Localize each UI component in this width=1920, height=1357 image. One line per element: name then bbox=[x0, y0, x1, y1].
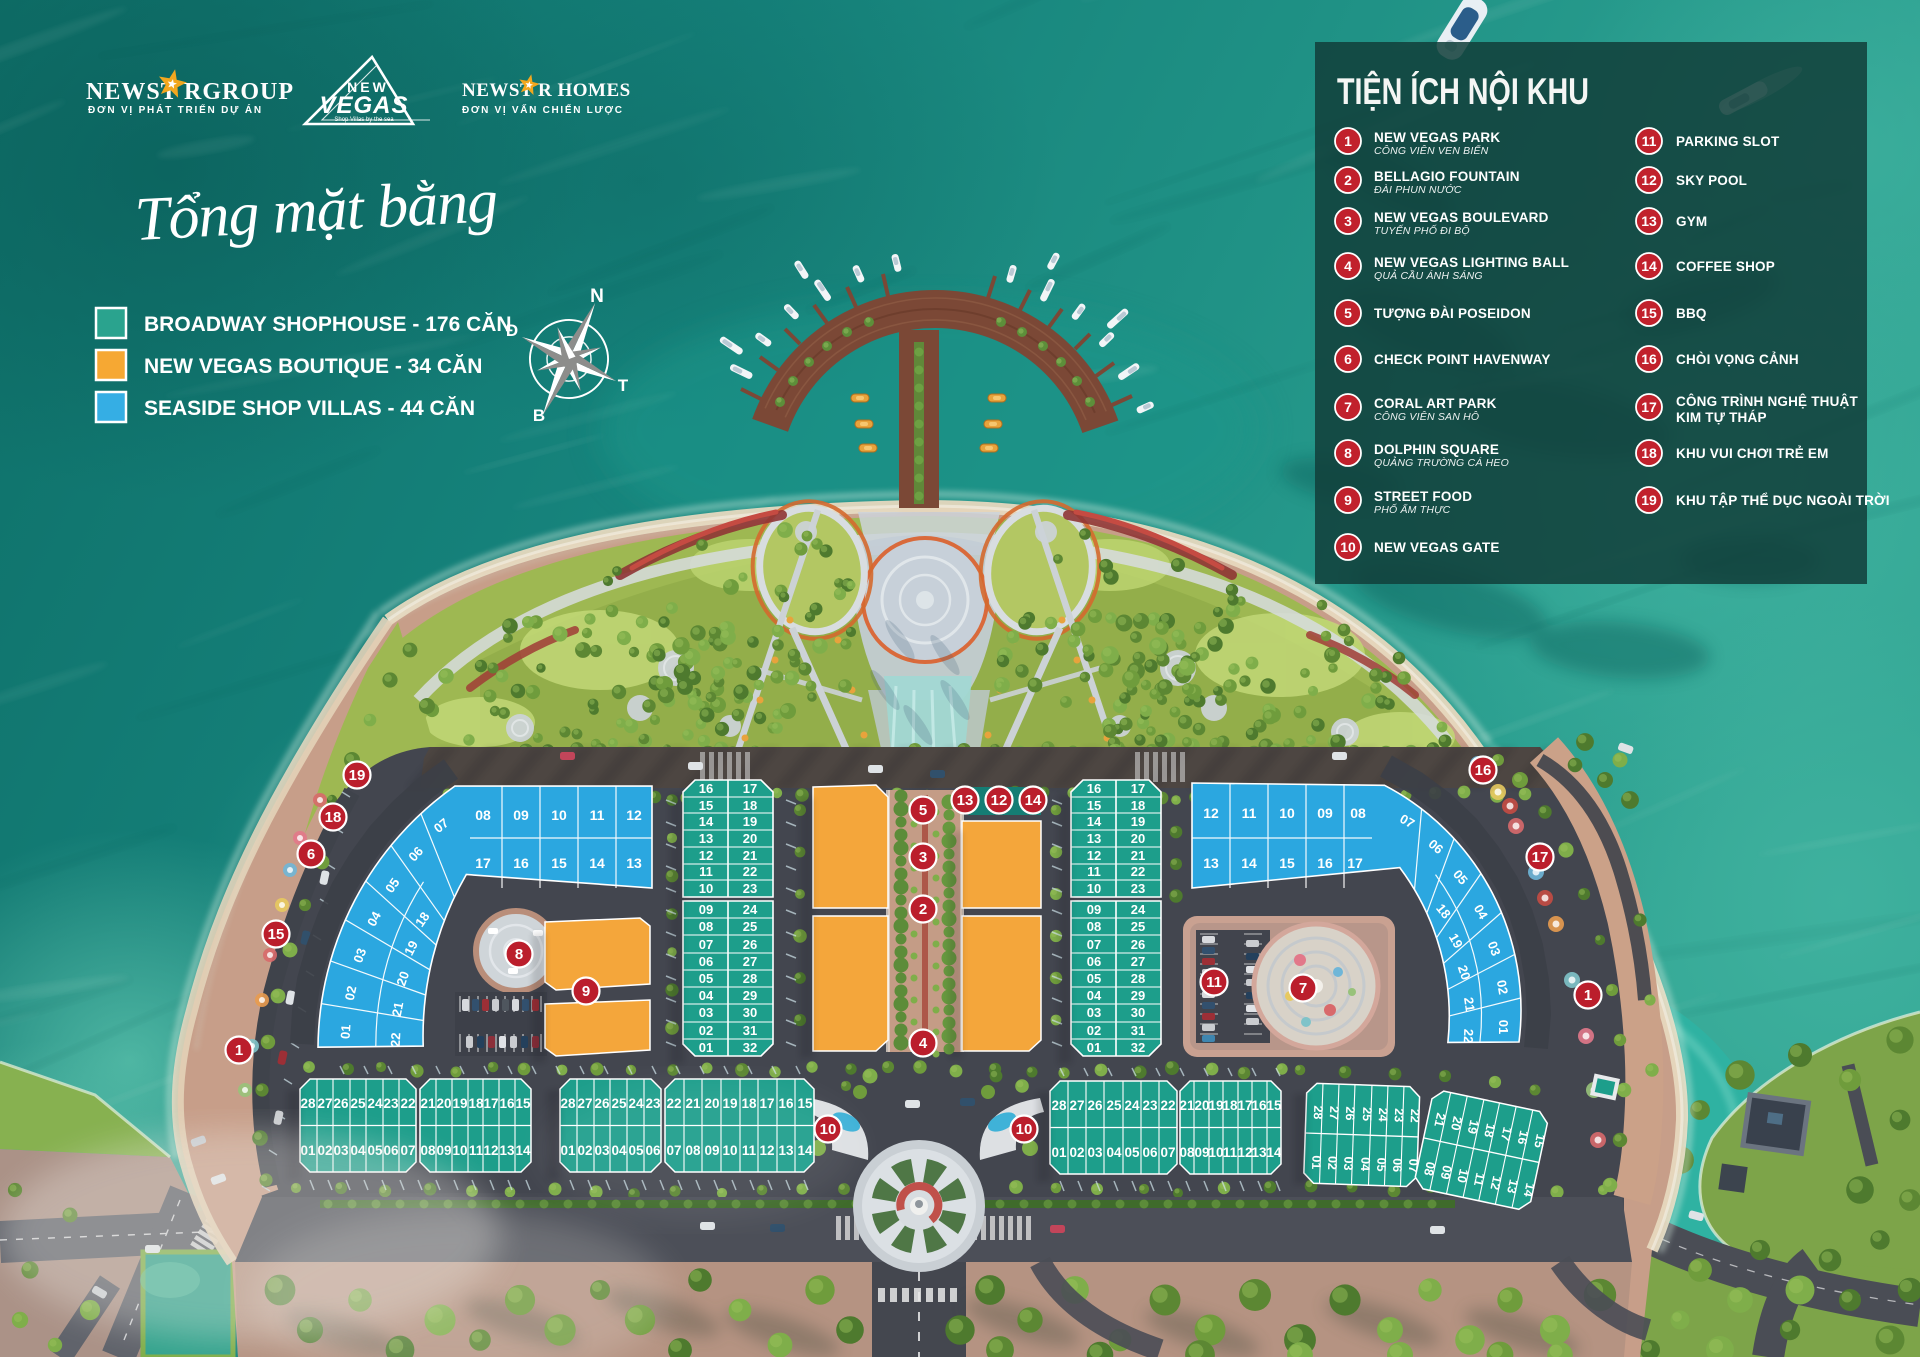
svg-text:COFFEE SHOP: COFFEE SHOP bbox=[1676, 259, 1775, 274]
svg-text:21: 21 bbox=[1461, 996, 1478, 1012]
svg-text:SKY POOL: SKY POOL bbox=[1676, 173, 1747, 188]
svg-text:01: 01 bbox=[1051, 1145, 1067, 1160]
svg-text:8: 8 bbox=[1344, 445, 1352, 461]
svg-text:09: 09 bbox=[1317, 805, 1333, 821]
svg-text:19: 19 bbox=[349, 767, 366, 784]
svg-text:27: 27 bbox=[317, 1096, 332, 1111]
svg-text:11: 11 bbox=[1642, 133, 1657, 149]
svg-text:TUYẾN PHỐ ĐI BỘ: TUYẾN PHỐ ĐI BỘ bbox=[1374, 224, 1470, 237]
svg-text:NEW VEGAS BOUTIQUE - 34 CĂN: NEW VEGAS BOUTIQUE - 34 CĂN bbox=[144, 355, 482, 378]
svg-text:12: 12 bbox=[626, 807, 642, 823]
svg-text:16: 16 bbox=[1317, 855, 1333, 871]
svg-text:09: 09 bbox=[1194, 1145, 1209, 1160]
svg-text:20: 20 bbox=[1194, 1098, 1209, 1113]
svg-text:11: 11 bbox=[1087, 864, 1101, 879]
svg-text:19: 19 bbox=[1131, 814, 1145, 829]
svg-text:17: 17 bbox=[483, 1096, 498, 1111]
svg-text:08: 08 bbox=[1350, 805, 1366, 821]
svg-text:23: 23 bbox=[1392, 1108, 1406, 1122]
svg-text:17: 17 bbox=[1237, 1098, 1252, 1113]
svg-text:11: 11 bbox=[699, 864, 713, 879]
svg-text:24: 24 bbox=[743, 902, 758, 917]
svg-text:2: 2 bbox=[1344, 172, 1352, 188]
svg-text:08: 08 bbox=[475, 807, 491, 823]
svg-text:25: 25 bbox=[743, 919, 757, 934]
svg-text:1: 1 bbox=[235, 1042, 243, 1059]
svg-text:10: 10 bbox=[1340, 539, 1356, 555]
svg-text:24: 24 bbox=[1124, 1098, 1140, 1113]
svg-text:32: 32 bbox=[743, 1040, 757, 1055]
svg-text:21: 21 bbox=[743, 848, 757, 863]
svg-text:Đ: Đ bbox=[506, 321, 518, 340]
svg-text:27: 27 bbox=[743, 954, 757, 969]
svg-text:17: 17 bbox=[1347, 855, 1363, 871]
svg-text:26: 26 bbox=[333, 1096, 349, 1111]
svg-text:28: 28 bbox=[1051, 1098, 1067, 1113]
svg-text:12: 12 bbox=[1237, 1145, 1252, 1160]
svg-text:28: 28 bbox=[1131, 971, 1145, 986]
svg-text:10: 10 bbox=[699, 881, 713, 896]
svg-text:20: 20 bbox=[1448, 1115, 1465, 1132]
svg-text:13: 13 bbox=[499, 1143, 515, 1158]
svg-text:17: 17 bbox=[1131, 781, 1145, 796]
svg-text:10: 10 bbox=[1208, 1145, 1223, 1160]
svg-text:19: 19 bbox=[452, 1096, 467, 1111]
svg-text:NEW VEGAS PARK: NEW VEGAS PARK bbox=[1374, 130, 1500, 145]
svg-text:23: 23 bbox=[743, 881, 757, 896]
svg-text:TIỆN ÍCH NỘI KHU: TIỆN ÍCH NỘI KHU bbox=[1337, 70, 1589, 112]
svg-text:02: 02 bbox=[1494, 979, 1511, 996]
svg-text:28: 28 bbox=[1311, 1105, 1325, 1119]
svg-text:07: 07 bbox=[1160, 1145, 1175, 1160]
svg-text:N: N bbox=[590, 286, 604, 307]
svg-text:5: 5 bbox=[919, 802, 927, 819]
svg-text:12: 12 bbox=[1087, 848, 1101, 863]
svg-text:31: 31 bbox=[743, 1023, 757, 1038]
svg-text:08: 08 bbox=[1421, 1161, 1438, 1178]
svg-text:24: 24 bbox=[367, 1096, 383, 1111]
svg-text:14: 14 bbox=[1266, 1145, 1282, 1160]
svg-text:18: 18 bbox=[1641, 445, 1657, 461]
svg-text:13: 13 bbox=[1641, 213, 1657, 229]
svg-text:16: 16 bbox=[1641, 351, 1657, 367]
svg-text:25: 25 bbox=[1106, 1098, 1122, 1113]
svg-text:4: 4 bbox=[919, 1035, 928, 1052]
svg-text:7: 7 bbox=[1299, 980, 1307, 997]
svg-text:04: 04 bbox=[1358, 1157, 1372, 1171]
svg-text:15: 15 bbox=[699, 798, 713, 813]
svg-text:16: 16 bbox=[513, 855, 529, 871]
svg-text:4: 4 bbox=[1344, 258, 1352, 274]
svg-text:TƯỢNG ĐÀI POSEIDON: TƯỢNG ĐÀI POSEIDON bbox=[1374, 306, 1531, 321]
svg-text:23: 23 bbox=[383, 1096, 399, 1111]
svg-text:Shop Villas by the sea: Shop Villas by the sea bbox=[334, 117, 394, 123]
svg-text:10: 10 bbox=[1454, 1168, 1471, 1185]
svg-text:09: 09 bbox=[1087, 902, 1101, 917]
svg-text:ĐƠN VỊ VẤN CHIẾN LƯỢC: ĐƠN VỊ VẤN CHIẾN LƯỢC bbox=[462, 103, 624, 116]
svg-text:28: 28 bbox=[743, 971, 757, 986]
svg-text:16: 16 bbox=[1087, 781, 1101, 796]
svg-text:17: 17 bbox=[475, 855, 491, 871]
svg-text:05: 05 bbox=[1374, 1157, 1388, 1171]
svg-text:KIM TỰ THÁP: KIM TỰ THÁP bbox=[1676, 410, 1767, 425]
svg-text:28: 28 bbox=[300, 1096, 316, 1111]
svg-text:7: 7 bbox=[1344, 399, 1352, 415]
svg-text:13: 13 bbox=[957, 792, 974, 809]
svg-text:14: 14 bbox=[1641, 258, 1657, 274]
svg-text:BELLAGIO FOUNTAIN: BELLAGIO FOUNTAIN bbox=[1374, 169, 1520, 184]
svg-text:14: 14 bbox=[1087, 814, 1102, 829]
svg-text:13: 13 bbox=[626, 855, 642, 871]
svg-text:10: 10 bbox=[452, 1143, 467, 1158]
svg-text:22: 22 bbox=[1160, 1098, 1175, 1113]
svg-text:CÔNG VIÊN VEN BIỂN: CÔNG VIÊN VEN BIỂN bbox=[1374, 144, 1489, 157]
svg-text:ĐÀI PHUN NƯỚC: ĐÀI PHUN NƯỚC bbox=[1374, 183, 1462, 196]
svg-text:02: 02 bbox=[342, 984, 360, 1001]
svg-text:06: 06 bbox=[1087, 954, 1101, 969]
svg-text:02: 02 bbox=[1087, 1023, 1101, 1038]
svg-text:CHECK POINT HAVENWAY: CHECK POINT HAVENWAY bbox=[1374, 352, 1551, 367]
svg-text:01: 01 bbox=[1087, 1040, 1101, 1055]
svg-text:NEW VEGAS LIGHTING BALL: NEW VEGAS LIGHTING BALL bbox=[1374, 255, 1569, 270]
svg-text:26: 26 bbox=[743, 937, 757, 952]
svg-text:06: 06 bbox=[1390, 1158, 1404, 1172]
svg-text:11: 11 bbox=[1223, 1145, 1238, 1160]
svg-text:11: 11 bbox=[1206, 974, 1222, 991]
svg-text:18: 18 bbox=[1481, 1122, 1498, 1139]
svg-text:05: 05 bbox=[1087, 971, 1101, 986]
svg-text:32: 32 bbox=[1131, 1040, 1145, 1055]
svg-text:PARKING SLOT: PARKING SLOT bbox=[1676, 134, 1780, 149]
svg-text:GYM: GYM bbox=[1676, 214, 1707, 229]
svg-text:27: 27 bbox=[1069, 1098, 1084, 1113]
svg-text:03: 03 bbox=[699, 1005, 713, 1020]
svg-text:12: 12 bbox=[1641, 172, 1657, 188]
svg-text:02: 02 bbox=[1325, 1156, 1339, 1170]
svg-text:23: 23 bbox=[1142, 1098, 1158, 1113]
svg-text:10: 10 bbox=[551, 807, 567, 823]
svg-text:23: 23 bbox=[1131, 881, 1145, 896]
svg-text:06: 06 bbox=[699, 954, 713, 969]
svg-text:21: 21 bbox=[1131, 848, 1145, 863]
svg-text:09: 09 bbox=[436, 1143, 451, 1158]
svg-text:SEASIDE SHOP VILLAS - 44 CĂN: SEASIDE SHOP VILLAS - 44 CĂN bbox=[144, 397, 475, 420]
svg-text:13: 13 bbox=[1504, 1178, 1521, 1195]
svg-text:29: 29 bbox=[1131, 988, 1145, 1003]
svg-text:QUẢ CẦU ÁNH SÁNG: QUẢ CẦU ÁNH SÁNG bbox=[1374, 269, 1483, 282]
svg-text:CORAL ART PARK: CORAL ART PARK bbox=[1374, 396, 1497, 411]
svg-text:09: 09 bbox=[699, 902, 713, 917]
svg-text:12: 12 bbox=[1488, 1175, 1505, 1192]
svg-text:14: 14 bbox=[699, 814, 714, 829]
svg-text:22: 22 bbox=[400, 1096, 415, 1111]
svg-text:30: 30 bbox=[1131, 1005, 1145, 1020]
svg-text:15: 15 bbox=[551, 855, 567, 871]
svg-text:16: 16 bbox=[1251, 1098, 1267, 1113]
svg-text:T: T bbox=[618, 376, 629, 395]
svg-text:11: 11 bbox=[1242, 805, 1257, 821]
svg-text:19: 19 bbox=[743, 814, 757, 829]
svg-text:CÔNG VIÊN SAN HÔ: CÔNG VIÊN SAN HÔ bbox=[1374, 410, 1479, 423]
svg-text:2: 2 bbox=[919, 901, 927, 918]
svg-text:20: 20 bbox=[436, 1096, 451, 1111]
svg-text:3: 3 bbox=[1344, 213, 1352, 229]
svg-text:6: 6 bbox=[1344, 351, 1352, 367]
svg-text:09: 09 bbox=[1438, 1164, 1455, 1181]
svg-text:14: 14 bbox=[1521, 1182, 1538, 1199]
svg-text:25: 25 bbox=[1131, 919, 1145, 934]
svg-text:29: 29 bbox=[743, 988, 757, 1003]
svg-text:6: 6 bbox=[307, 846, 315, 863]
svg-text:07: 07 bbox=[699, 937, 713, 952]
svg-text:05: 05 bbox=[699, 971, 713, 986]
svg-text:BROADWAY SHOPHOUSE - 176 CĂN: BROADWAY SHOPHOUSE - 176 CĂN bbox=[144, 313, 512, 336]
svg-text:10: 10 bbox=[820, 1121, 837, 1138]
svg-text:15: 15 bbox=[1279, 855, 1295, 871]
svg-text:02: 02 bbox=[1069, 1145, 1084, 1160]
svg-text:ĐƠN VỊ PHÁT TRIỂN DỰ ÁN: ĐƠN VỊ PHÁT TRIỂN DỰ ÁN bbox=[88, 103, 263, 116]
svg-text:16: 16 bbox=[699, 781, 713, 796]
svg-text:14: 14 bbox=[515, 1143, 531, 1158]
svg-text:18: 18 bbox=[1131, 798, 1145, 813]
svg-text:22: 22 bbox=[388, 1032, 404, 1047]
svg-text:15: 15 bbox=[1087, 798, 1101, 813]
svg-text:03: 03 bbox=[1341, 1156, 1355, 1170]
svg-text:08: 08 bbox=[699, 919, 713, 934]
svg-text:22: 22 bbox=[1408, 1109, 1422, 1123]
svg-text:R HOMES: R HOMES bbox=[538, 80, 631, 101]
svg-text:QUẢNG TRƯỜNG CÁ HEO: QUẢNG TRƯỜNG CÁ HEO bbox=[1374, 456, 1509, 469]
svg-text:24: 24 bbox=[1376, 1107, 1390, 1121]
svg-text:1: 1 bbox=[1584, 987, 1592, 1004]
svg-text:22: 22 bbox=[1461, 1029, 1476, 1044]
svg-text:15: 15 bbox=[1641, 305, 1657, 321]
svg-text:15: 15 bbox=[1266, 1098, 1282, 1113]
svg-text:11: 11 bbox=[469, 1143, 484, 1158]
svg-text:31: 31 bbox=[1131, 1023, 1145, 1038]
svg-text:27: 27 bbox=[1131, 954, 1145, 969]
svg-text:11: 11 bbox=[590, 807, 605, 823]
svg-text:21: 21 bbox=[1431, 1112, 1448, 1129]
svg-text:01: 01 bbox=[1496, 1020, 1511, 1034]
svg-text:DOLPHIN SQUARE: DOLPHIN SQUARE bbox=[1374, 442, 1499, 457]
svg-text:08: 08 bbox=[1087, 919, 1101, 934]
svg-text:25: 25 bbox=[350, 1096, 366, 1111]
svg-text:12: 12 bbox=[483, 1143, 498, 1158]
svg-text:08: 08 bbox=[420, 1143, 436, 1158]
svg-text:5: 5 bbox=[1344, 305, 1352, 321]
svg-text:03: 03 bbox=[1087, 1145, 1103, 1160]
svg-text:17: 17 bbox=[1641, 399, 1657, 415]
svg-text:13: 13 bbox=[1203, 855, 1219, 871]
svg-text:CÔNG TRÌNH NGHỆ THUẬT: CÔNG TRÌNH NGHỆ THUẬT bbox=[1676, 394, 1858, 409]
svg-text:20: 20 bbox=[1131, 831, 1145, 846]
svg-text:16: 16 bbox=[1475, 762, 1492, 779]
svg-text:12: 12 bbox=[1203, 805, 1219, 821]
svg-text:RGROUP: RGROUP bbox=[184, 79, 294, 105]
svg-text:17: 17 bbox=[743, 781, 757, 796]
svg-text:24: 24 bbox=[1131, 902, 1146, 917]
svg-text:22: 22 bbox=[1131, 864, 1145, 879]
svg-text:VEGAS: VEGAS bbox=[319, 92, 408, 119]
svg-text:CHÒI VỌNG CẢNH: CHÒI VỌNG CẢNH bbox=[1676, 352, 1799, 367]
svg-text:8: 8 bbox=[515, 946, 523, 963]
svg-text:9: 9 bbox=[582, 983, 590, 1000]
svg-text:30: 30 bbox=[743, 1005, 757, 1020]
svg-text:B: B bbox=[533, 406, 545, 425]
svg-text:07: 07 bbox=[1087, 937, 1101, 952]
svg-text:KHU TẬP THỂ DỤC NGOÀI TRỜI: KHU TẬP THỂ DỤC NGOÀI TRỜI bbox=[1676, 493, 1890, 508]
svg-text:10: 10 bbox=[1016, 1121, 1033, 1138]
svg-text:18: 18 bbox=[1222, 1098, 1238, 1113]
svg-text:04: 04 bbox=[1087, 988, 1102, 1003]
svg-text:14: 14 bbox=[1025, 792, 1042, 809]
svg-text:09: 09 bbox=[513, 807, 529, 823]
svg-text:01: 01 bbox=[1309, 1155, 1323, 1169]
svg-text:17: 17 bbox=[1498, 1126, 1515, 1143]
svg-text:01: 01 bbox=[699, 1040, 713, 1055]
svg-text:01: 01 bbox=[338, 1024, 354, 1039]
svg-text:15: 15 bbox=[268, 926, 285, 943]
svg-text:21: 21 bbox=[1179, 1098, 1195, 1113]
svg-text:21: 21 bbox=[389, 1001, 406, 1018]
svg-text:15: 15 bbox=[515, 1096, 531, 1111]
svg-text:14: 14 bbox=[589, 855, 605, 871]
svg-text:9: 9 bbox=[1344, 492, 1352, 508]
svg-text:02: 02 bbox=[699, 1023, 713, 1038]
svg-text:26: 26 bbox=[1087, 1098, 1103, 1113]
svg-text:10: 10 bbox=[1279, 805, 1295, 821]
svg-text:26: 26 bbox=[1131, 937, 1145, 952]
svg-text:1: 1 bbox=[1344, 133, 1352, 149]
svg-text:21: 21 bbox=[420, 1096, 436, 1111]
svg-text:16: 16 bbox=[499, 1096, 515, 1111]
svg-text:3: 3 bbox=[919, 849, 927, 866]
svg-text:12: 12 bbox=[699, 848, 713, 863]
svg-text:22: 22 bbox=[743, 864, 757, 879]
svg-text:17: 17 bbox=[1532, 849, 1549, 866]
svg-text:20: 20 bbox=[743, 831, 757, 846]
svg-text:10: 10 bbox=[1087, 881, 1101, 896]
svg-text:14: 14 bbox=[1241, 855, 1257, 871]
svg-text:19: 19 bbox=[1465, 1119, 1482, 1136]
svg-text:03: 03 bbox=[1087, 1005, 1101, 1020]
svg-text:15: 15 bbox=[1531, 1133, 1548, 1150]
svg-text:13: 13 bbox=[1087, 831, 1101, 846]
svg-text:18: 18 bbox=[325, 809, 342, 826]
svg-text:NEW VEGAS BOULEVARD: NEW VEGAS BOULEVARD bbox=[1374, 210, 1549, 225]
svg-text:STREET FOOD: STREET FOOD bbox=[1374, 489, 1472, 504]
svg-text:12: 12 bbox=[991, 792, 1008, 809]
svg-text:NEW VEGAS GATE: NEW VEGAS GATE bbox=[1374, 540, 1500, 555]
svg-text:13: 13 bbox=[1251, 1145, 1267, 1160]
svg-text:26: 26 bbox=[1343, 1106, 1357, 1120]
svg-text:PHỐ ẨM THỰC: PHỐ ẨM THỰC bbox=[1374, 503, 1451, 516]
svg-text:08: 08 bbox=[1179, 1145, 1195, 1160]
svg-text:05: 05 bbox=[1124, 1145, 1140, 1160]
svg-text:27: 27 bbox=[1327, 1106, 1341, 1120]
svg-text:04: 04 bbox=[699, 988, 714, 1003]
svg-text:19: 19 bbox=[1208, 1098, 1223, 1113]
svg-text:KHU VUI CHƠI TRẺ EM: KHU VUI CHƠI TRẺ EM bbox=[1676, 446, 1829, 461]
svg-text:18: 18 bbox=[468, 1096, 484, 1111]
svg-text:19: 19 bbox=[1641, 492, 1657, 508]
svg-text:13: 13 bbox=[699, 831, 713, 846]
svg-text:16: 16 bbox=[1515, 1129, 1532, 1146]
svg-text:BBQ: BBQ bbox=[1676, 306, 1707, 321]
svg-text:25: 25 bbox=[1360, 1107, 1374, 1121]
svg-text:06: 06 bbox=[1142, 1145, 1158, 1160]
svg-text:04: 04 bbox=[1106, 1145, 1122, 1160]
svg-text:18: 18 bbox=[743, 798, 757, 813]
